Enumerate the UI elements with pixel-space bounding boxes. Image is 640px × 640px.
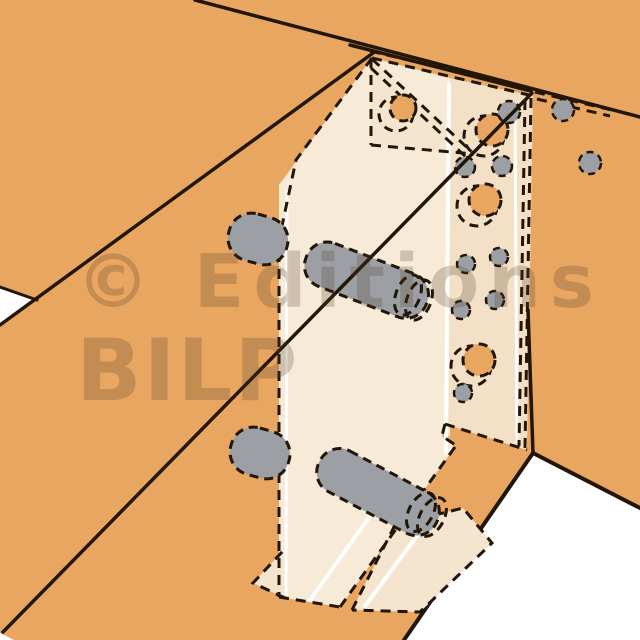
- flange-hole-2: [469, 184, 501, 216]
- watermark-line-1: © Editions: [76, 239, 603, 325]
- nail-dot-4: [492, 156, 512, 176]
- nail-dot-10: [454, 384, 472, 402]
- scene-svg: © EditionsBILP: [0, 0, 640, 640]
- nail-dot-1: [498, 101, 520, 123]
- nail-dot-2: [552, 99, 574, 121]
- illustration-canvas: © EditionsBILP: [0, 0, 640, 640]
- watermark-line-2: BILP: [76, 321, 299, 421]
- flange-hole-3: [463, 344, 495, 376]
- nail-dot-5: [579, 152, 601, 174]
- fin-hole: [390, 95, 416, 121]
